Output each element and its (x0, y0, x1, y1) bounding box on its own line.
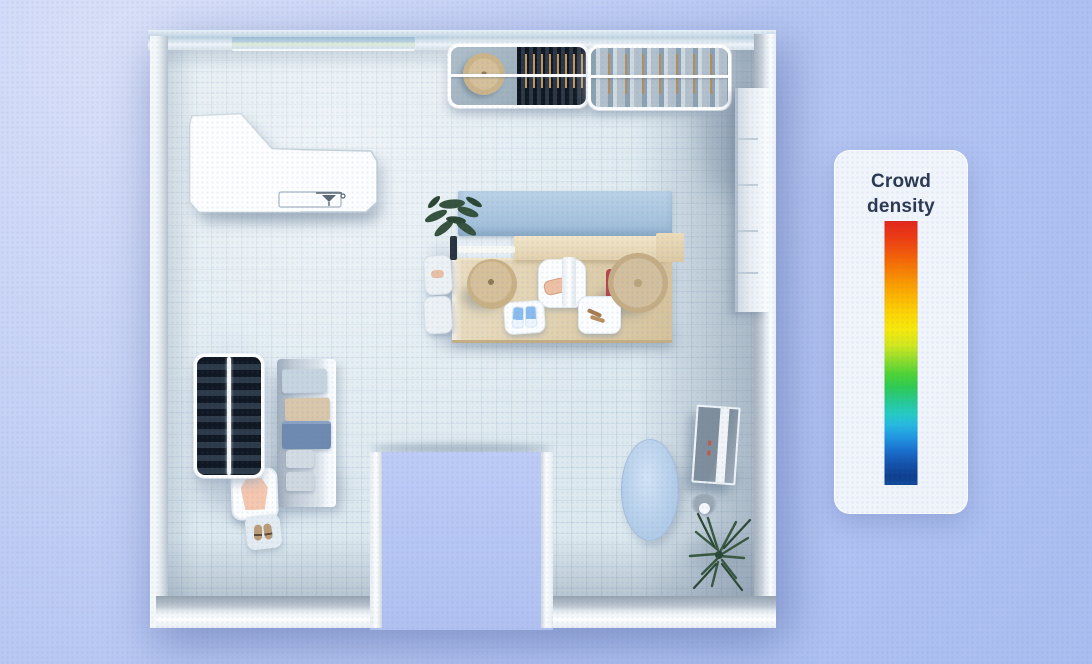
rack-rail (591, 75, 728, 78)
hair-clip (590, 315, 606, 323)
leaning-mirror (691, 405, 740, 486)
hanger-rods (519, 54, 584, 88)
folded-stack (282, 421, 331, 449)
legend-card: Crowd density (834, 150, 968, 514)
folded-stack (286, 450, 314, 468)
shelf-line (738, 230, 758, 232)
side-pedestal (423, 295, 453, 334)
hanging-strap (562, 257, 576, 307)
shirt (240, 478, 268, 511)
sneaker (525, 305, 538, 327)
entrance-pillar-right (541, 452, 553, 628)
pedestal-shoes (503, 300, 546, 336)
legend-title: Crowd density (848, 169, 954, 219)
wall-vent (232, 37, 415, 51)
mirror-mark (707, 450, 710, 455)
display-crossbar-end (656, 233, 684, 262)
hat-display-right (608, 253, 668, 313)
shelf-line (738, 138, 758, 140)
hat-display-left (467, 259, 517, 309)
shelf-line (738, 184, 758, 186)
wall-shelf (735, 88, 769, 312)
wall-shelf-edge (735, 88, 738, 312)
potted-plant (422, 190, 488, 264)
legend-gradient-bar (885, 221, 918, 485)
shoe (263, 523, 273, 540)
sneaker (511, 306, 524, 329)
folded-stack (282, 369, 327, 394)
mirror-reflection (715, 408, 729, 482)
entrance-opening (370, 452, 553, 630)
shoe-stand (244, 513, 282, 550)
folded-stack (286, 472, 314, 491)
rolled-garment (431, 270, 444, 279)
wall-left (150, 36, 168, 628)
rack-rail (451, 74, 586, 77)
shelf-line (738, 272, 758, 274)
floor-plant (678, 498, 762, 602)
rug (621, 439, 679, 541)
folded-stack (285, 398, 330, 422)
shoe (254, 525, 262, 541)
mirror-mark (708, 441, 711, 446)
crowd-density-viewer: Crowd density (0, 0, 1092, 664)
display-backdrop-panel (458, 191, 672, 236)
entrance-pillar-left (370, 452, 382, 628)
hanging-rack-top-right[interactable] (588, 45, 731, 110)
hanging-rack-bottom-left[interactable] (194, 354, 264, 478)
folded-clothes-shelf (277, 359, 336, 507)
hanging-rack-top-left[interactable] (448, 44, 589, 108)
hanger-rods (593, 54, 726, 94)
reception-counter (185, 108, 385, 220)
